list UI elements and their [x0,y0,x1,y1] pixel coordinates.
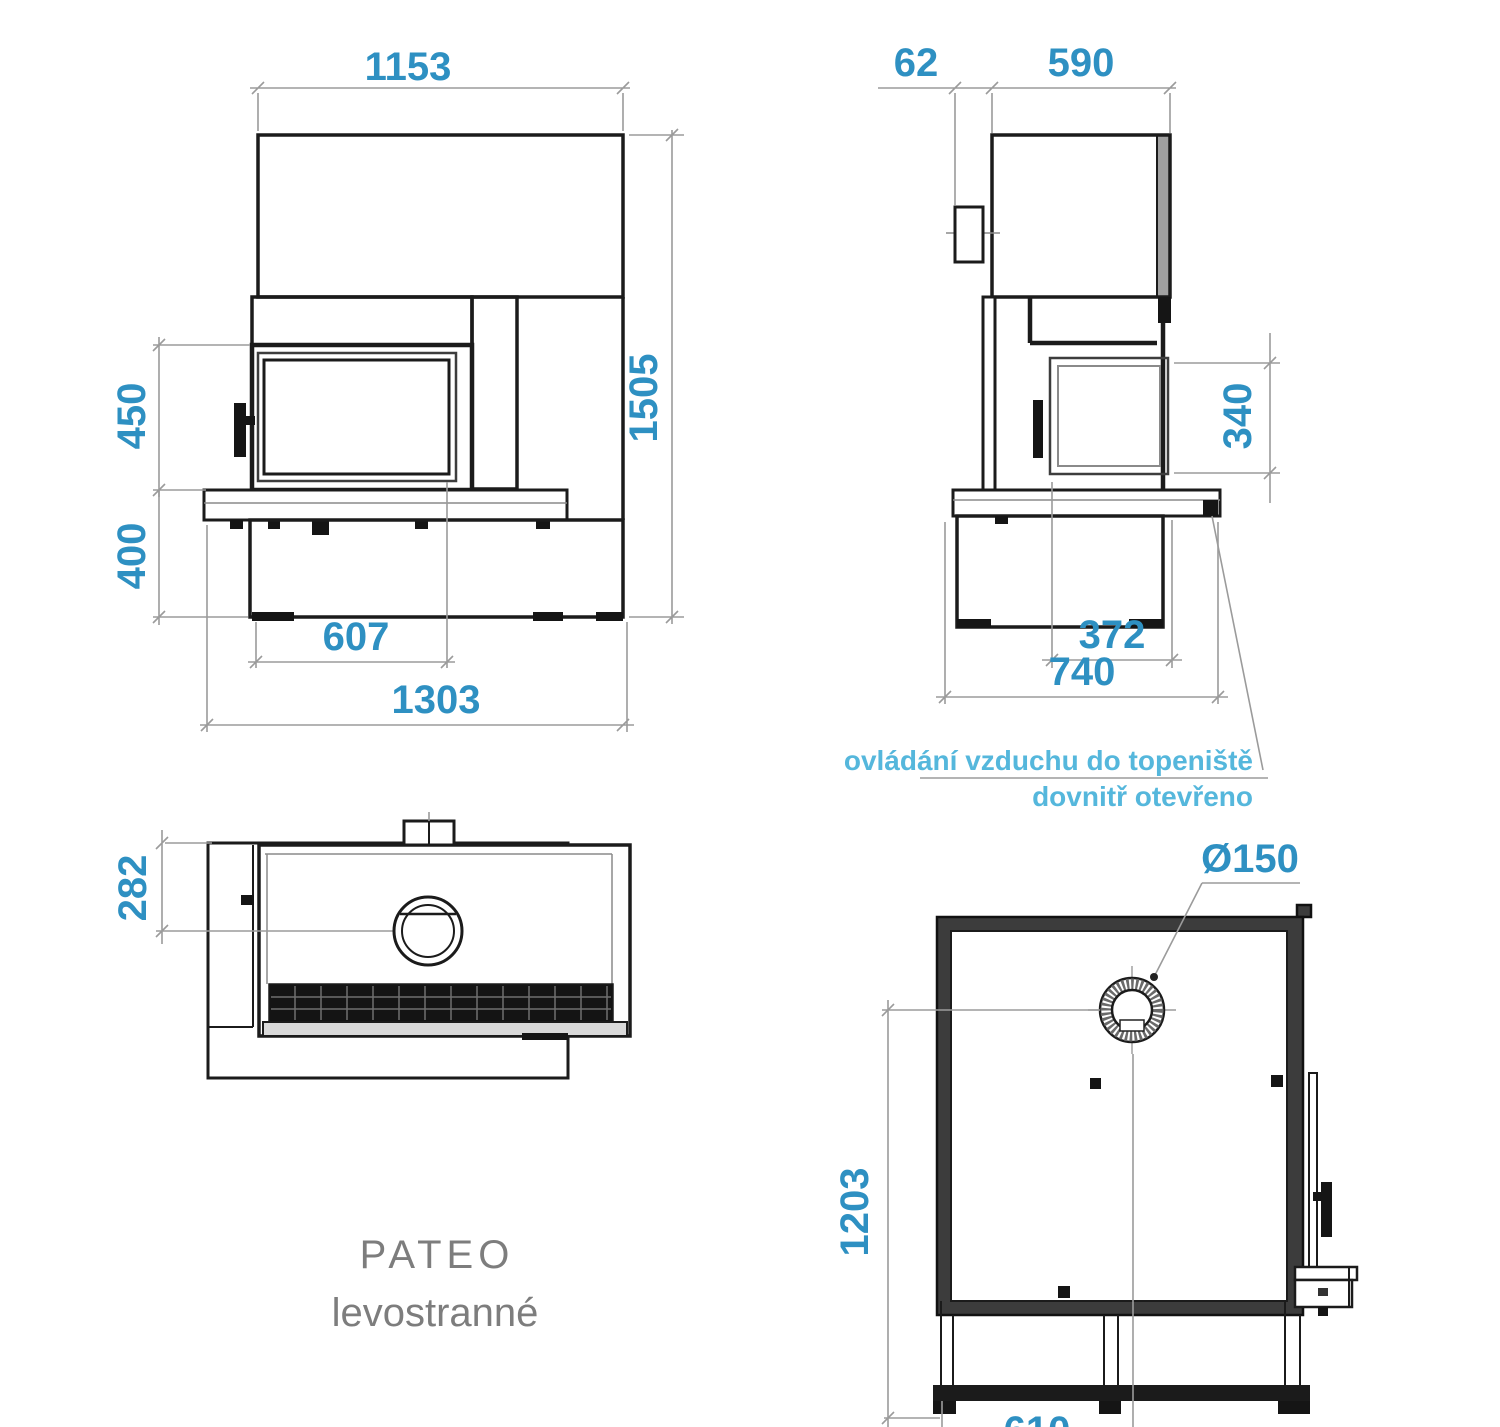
plan-leader-arrow-dot [1150,973,1158,981]
side-bench-slab [953,490,1220,516]
plan-latch-tick [1318,1288,1328,1296]
front-door-glass-outer [258,353,456,481]
plan-base-band [933,1385,1310,1401]
top-front-notch [522,1033,568,1040]
front-hood [258,135,623,297]
top-front-band [263,1022,627,1036]
plan-flue-tab [1120,1020,1144,1031]
top-flue-circle-outer [394,897,462,965]
dim-top-flue-offset: 282 [111,830,212,944]
dim-label-plan-half-width: 610 [1004,1409,1071,1427]
dim-label-front-total-height: 1505 [622,354,666,443]
drawing-page: 1153 1505 450 400 607 1303 [0,0,1500,1427]
dim-label-side-handle-offset: 62 [894,41,939,85]
side-air-control-notch [1203,500,1218,516]
plan-door-handle [1321,1182,1332,1237]
side-door-handle [1033,400,1043,458]
dim-front-hood-width: 1153 [250,45,630,131]
front-door-frame [252,345,472,490]
air-control-annotation-line2: dovnitř otevřeno [1032,781,1253,812]
side-base-box [957,516,1163,627]
dim-label-plan-flue-to-front: 1203 [833,1168,877,1257]
plan-latch-plate [1295,1267,1357,1280]
dim-label-side-glass-height: 340 [1216,383,1260,450]
dim-label-front-firebox-width: 607 [323,615,390,659]
dim-side-offset-depth: 62 590 [878,41,1176,205]
technical-drawing-canvas: 1153 1505 450 400 607 1303 [0,0,1500,1427]
plan-view: Ø150 1203 610 [833,837,1357,1427]
top-view: 282 [111,812,630,1078]
dim-front-total-height: 1505 [622,129,684,624]
side-back-wall-fill [1157,135,1170,297]
air-control-annotation-line1: ovládání vzduchu do topeniště [844,745,1253,776]
front-bench-slab [204,490,567,520]
front-right-column [472,297,517,489]
dim-label-front-hood-width: 1153 [365,45,452,89]
front-view: 1153 1505 450 400 607 1303 [110,45,684,732]
side-glass-outer [1050,358,1168,474]
front-slab-feet [230,520,550,535]
dim-side-glass-height: 340 [1174,333,1280,503]
plan-base-feet [933,1401,1310,1414]
top-side-pin [241,895,254,905]
side-glass-inner [1058,366,1160,466]
dim-label-front-plinth-height: 400 [110,523,154,590]
dim-label-plan-flue-diameter: Ø150 [1201,837,1299,881]
dim-label-front-door-height: 450 [110,383,154,450]
front-door-glass-inner [264,360,449,474]
side-front-wall [983,297,995,490]
plan-latch-pin [1318,1307,1328,1316]
dim-label-top-flue-offset: 282 [111,855,155,922]
plan-side-door-plate [1309,1073,1317,1268]
side-upper-box [992,135,1170,297]
dim-front-door-height: 450 [110,337,250,497]
dim-front-base-width: 1303 [200,525,634,732]
front-door-handle-pin [246,416,255,425]
front-door-handle [234,403,246,457]
title-variant: levostranné [332,1291,539,1335]
side-base-tab [995,516,1008,524]
dim-label-front-base-width: 1303 [392,678,481,722]
title-model: PATEO [360,1233,515,1277]
front-base-box [250,520,623,617]
side-joint-block [1158,297,1171,323]
dim-label-side-body-depth: 590 [1048,41,1115,85]
front-top-band [252,297,472,345]
side-air-handle [955,207,983,262]
plan-door-handle-stem [1313,1192,1321,1201]
plan-corner-step [1297,905,1311,917]
side-view: 62 590 340 372 740 ovládání vzduchu do t… [844,41,1280,812]
dim-label-side-bench-depth: 740 [1049,650,1116,694]
drawing-title: PATEO levostranné [332,1233,539,1335]
